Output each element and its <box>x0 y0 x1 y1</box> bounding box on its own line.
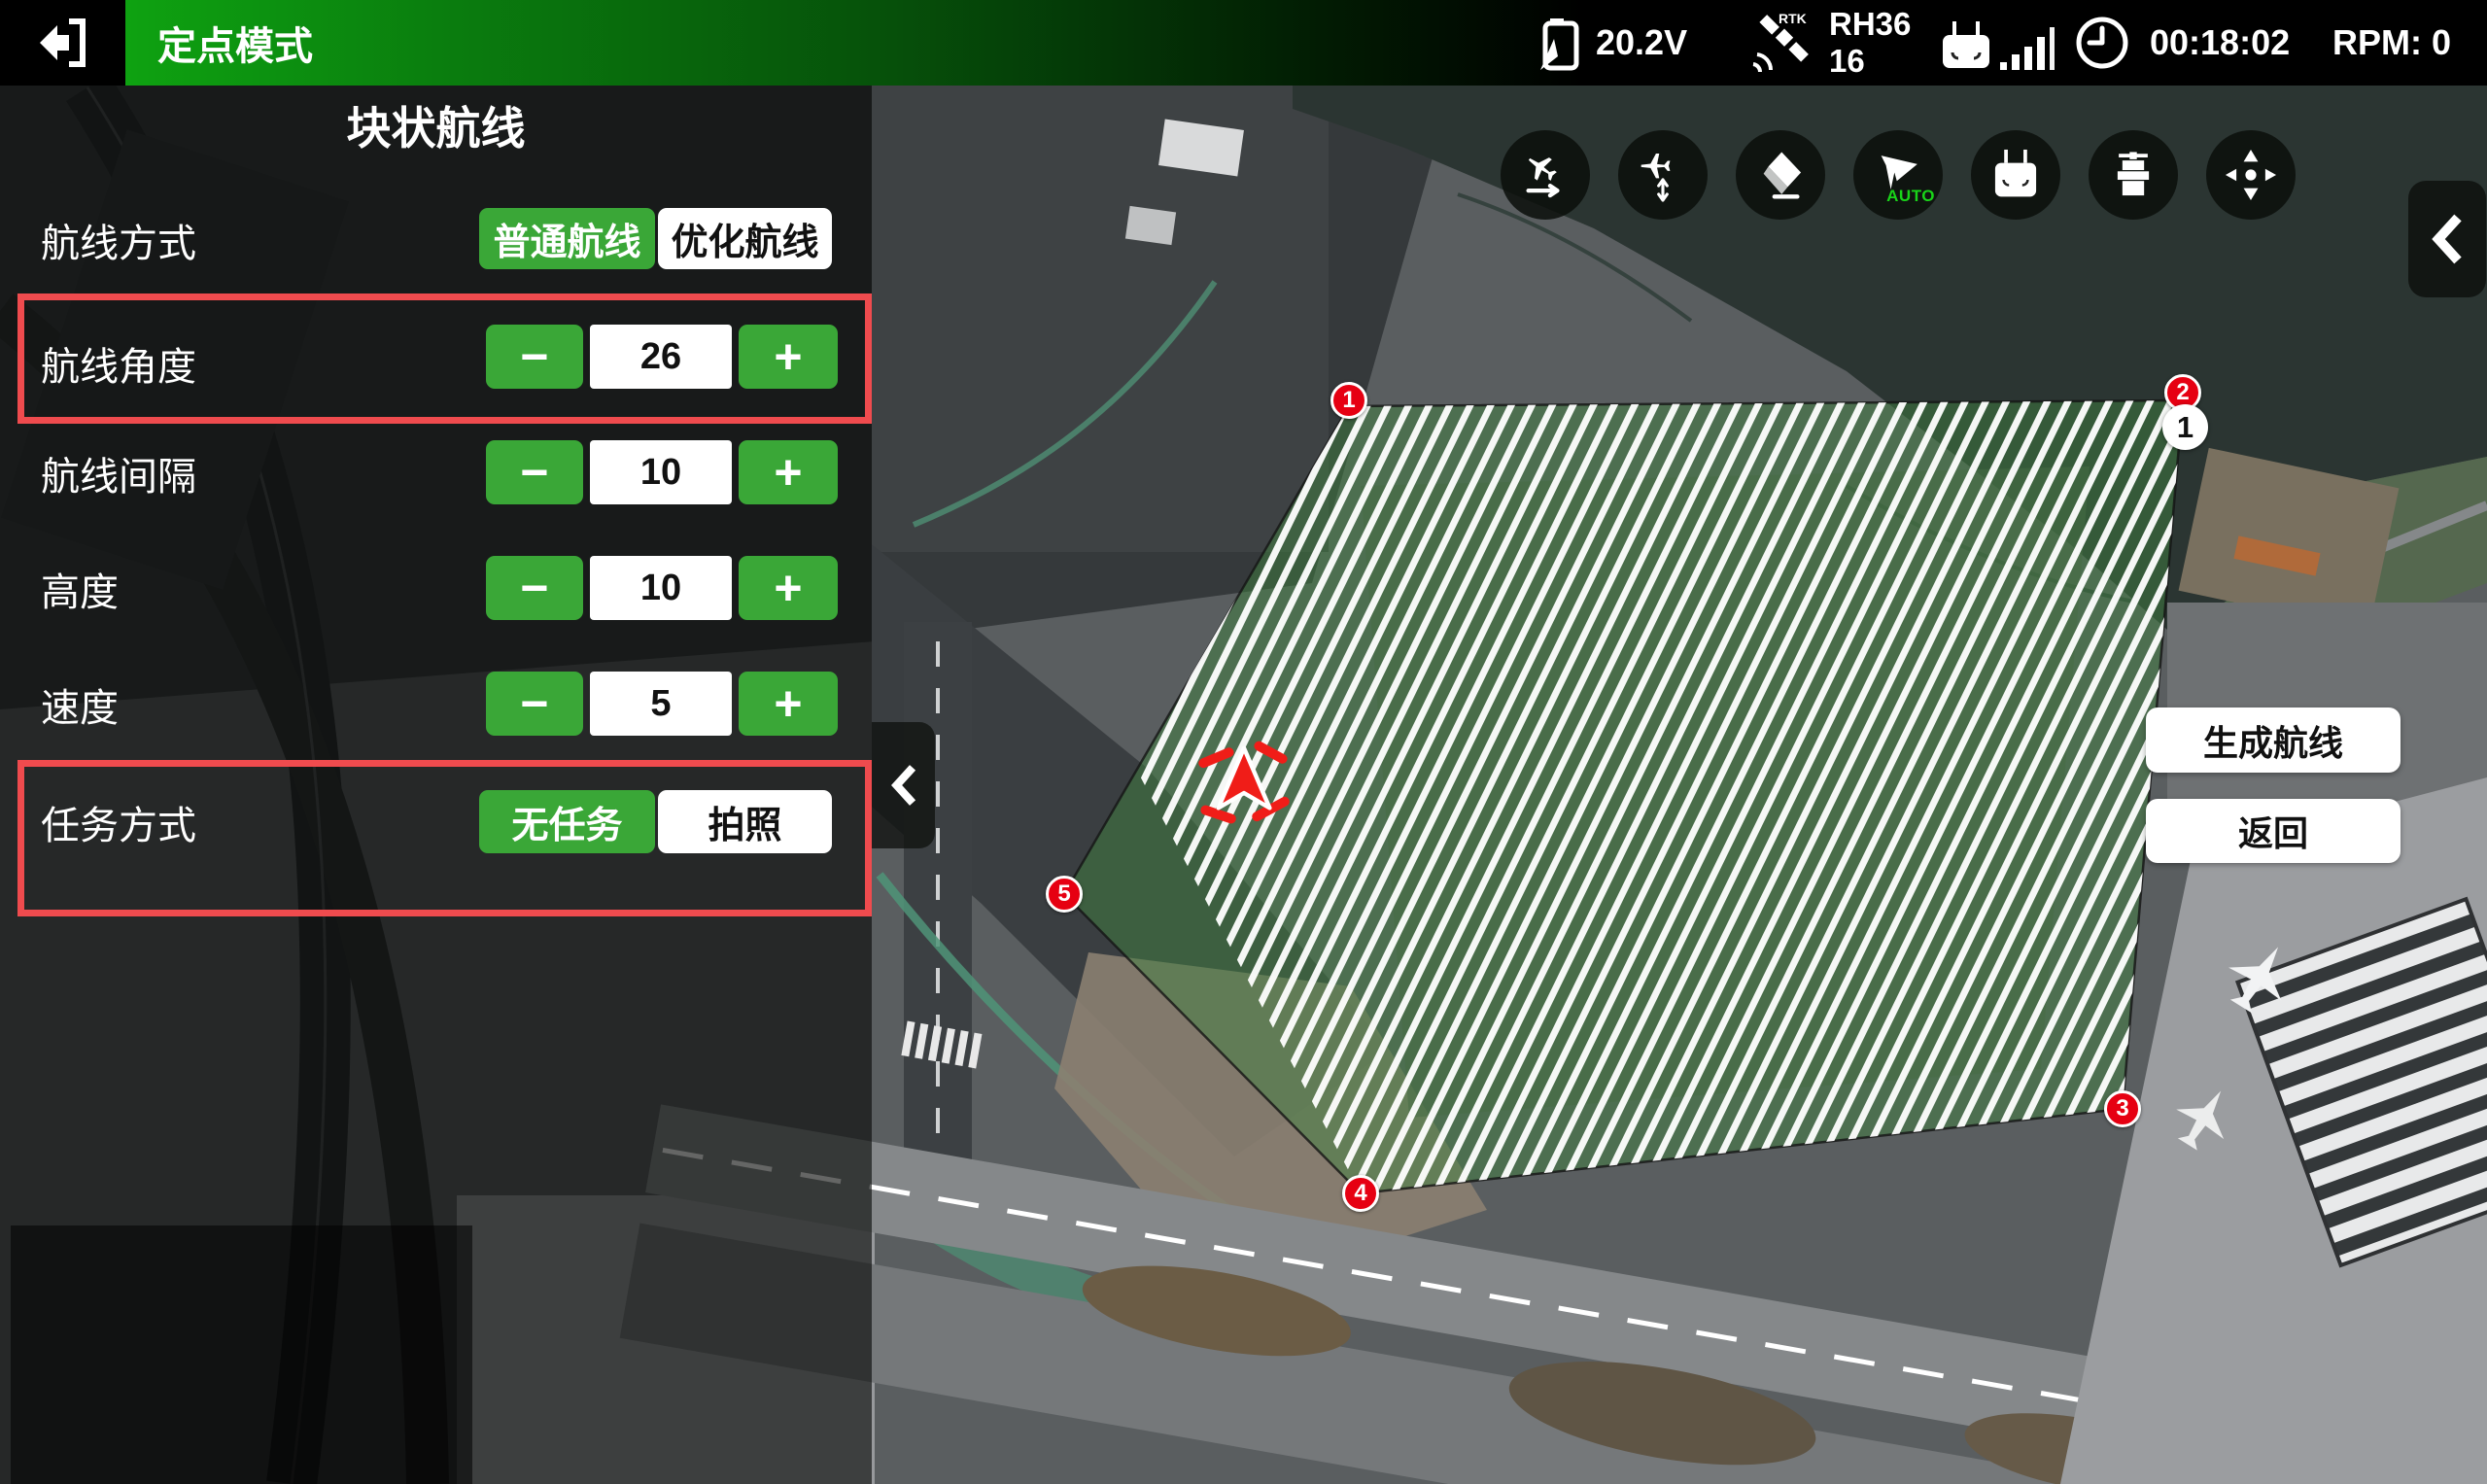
status-bar: 定点模式 20.2V RTK RH36 16 00:18:02 RPM: 0 <box>0 0 2487 86</box>
vtol-route-icon <box>1633 145 1693 205</box>
collapse-right-panel-button[interactable] <box>2408 181 2486 297</box>
mode-banner <box>125 0 1583 86</box>
speed-plus-button[interactable]: + <box>739 672 838 736</box>
rtk-name: RH36 <box>1829 6 1911 43</box>
altitude-label: 高度 <box>41 561 119 617</box>
route-angle-label: 航线角度 <box>41 335 196 392</box>
clock-icon <box>2075 16 2129 70</box>
gimbal-control-icon <box>2103 145 2163 205</box>
gimbal-control-button[interactable] <box>2089 130 2178 220</box>
chevron-left-icon <box>2431 214 2464 264</box>
waypoint-marker-5[interactable]: 5 <box>1046 876 1083 913</box>
line-spacing-minus-button[interactable]: − <box>486 440 583 504</box>
route-start-marker[interactable]: 1 <box>2162 404 2208 450</box>
altitude-minus-button[interactable]: − <box>486 556 583 620</box>
controller-icon <box>1939 19 1993 70</box>
task-photo-button[interactable]: 拍照 <box>658 790 832 853</box>
altitude-plus-button[interactable]: + <box>739 556 838 620</box>
vtol-route-button[interactable] <box>1618 130 1708 220</box>
back-button[interactable] <box>0 0 125 86</box>
minimized-preview <box>11 1225 472 1484</box>
waypoint-marker-4[interactable]: 4 <box>1342 1175 1379 1212</box>
battery-icon <box>1538 16 1585 72</box>
waypoint-marker-3[interactable]: 3 <box>2104 1090 2141 1127</box>
rpm-readout: RPM: 0 <box>2332 0 2451 86</box>
altitude-value[interactable]: 10 <box>590 556 732 620</box>
svg-text:RTK: RTK <box>1779 11 1807 26</box>
flight-mode-label: 定点模式 <box>157 0 313 86</box>
auto-badge: AUTO <box>1886 187 1935 206</box>
signal-bars-icon <box>2000 25 2055 70</box>
line-spacing-plus-button[interactable]: + <box>739 440 838 504</box>
route-mode-optimized-button[interactable]: 优化航线 <box>658 208 832 269</box>
chevron-left-icon <box>890 763 917 808</box>
rtk-satellite-icon: RTK <box>1749 10 1819 78</box>
eraser-icon <box>1750 145 1811 205</box>
waypoint-marker-1[interactable]: 1 <box>1330 382 1367 419</box>
pan-control-icon <box>2221 145 2281 205</box>
speed-label: 速度 <box>41 676 119 733</box>
route-mode-normal-button[interactable]: 普通航线 <box>479 208 655 269</box>
auto-follow-button[interactable]: AUTO <box>1853 130 1943 220</box>
remote-controller-button[interactable] <box>1971 130 2060 220</box>
drone-position-icon <box>1191 729 1297 836</box>
line-spacing-label: 航线间隔 <box>41 445 196 501</box>
route-angle-minus-button[interactable]: − <box>486 325 583 389</box>
task-none-button[interactable]: 无任务 <box>479 790 655 853</box>
rtk-count: 16 <box>1829 43 1865 80</box>
fixed-wing-route-icon <box>1515 145 1575 205</box>
back-exit-icon <box>36 16 90 70</box>
eraser-button[interactable] <box>1736 130 1825 220</box>
pan-control-button[interactable] <box>2206 130 2296 220</box>
flight-time: 00:18:02 <box>2150 0 2290 86</box>
generate-route-button[interactable]: 生成航线 <box>2146 707 2401 773</box>
remote-controller-icon <box>1986 145 2046 205</box>
route-mode-label: 航线方式 <box>41 212 196 268</box>
return-button[interactable]: 返回 <box>2146 799 2401 863</box>
line-spacing-value[interactable]: 10 <box>590 440 732 504</box>
route-angle-plus-button[interactable]: + <box>739 325 838 389</box>
speed-value[interactable]: 5 <box>590 672 732 736</box>
battery-voltage: 20.2V <box>1596 0 1687 86</box>
collapse-left-panel-button[interactable] <box>872 722 935 848</box>
speed-minus-button[interactable]: − <box>486 672 583 736</box>
fixed-wing-route-button[interactable] <box>1501 130 1590 220</box>
task-mode-label: 任务方式 <box>41 794 196 850</box>
panel-title: 块状航线 <box>0 93 872 157</box>
route-angle-value[interactable]: 26 <box>590 325 732 389</box>
